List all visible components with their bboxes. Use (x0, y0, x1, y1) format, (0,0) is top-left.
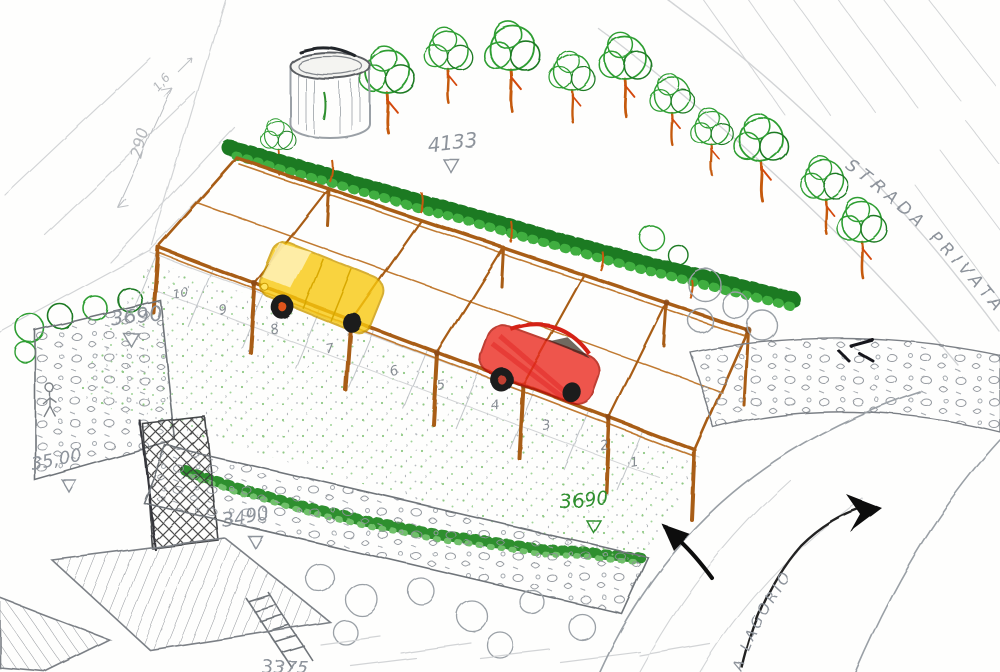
tree (424, 27, 472, 103)
tree (735, 114, 790, 202)
site-sketch-paper: STRADA PRIVATA A LAGORIO 4133 3690 35,00… (0, 0, 1000, 672)
entrance-arrow (662, 524, 712, 578)
private-road-edges (598, 0, 998, 365)
tree (483, 20, 541, 112)
curved-direction-arrow (742, 494, 882, 668)
elevation-orchard: 4133 (426, 128, 479, 157)
tree (599, 33, 652, 117)
road-label-strada-privata: STRADA PRIVATA (842, 156, 1000, 319)
elevation-marker-triangle (248, 536, 262, 548)
elevation-marker-triangle (62, 480, 76, 492)
tree (650, 73, 695, 145)
water-tank (290, 48, 370, 138)
elevation-marker-triangle (444, 160, 459, 173)
tree (691, 108, 734, 176)
road-via-lagorio (600, 392, 1000, 672)
site-sketch: STRADA PRIVATA A LAGORIO 4133 3690 35,00… (0, 0, 1000, 672)
road-label-lagorio: A LAGORIO (728, 566, 794, 672)
elevation-bottom-partial: 3375 (262, 657, 308, 672)
parking-space-number: 10 (170, 284, 189, 302)
tree (550, 50, 595, 122)
tree (361, 46, 416, 134)
retaining-wall-right (690, 338, 1000, 432)
roof-hatched-b (0, 598, 110, 672)
tree (837, 198, 887, 278)
dimension-290: 290 (127, 127, 153, 161)
